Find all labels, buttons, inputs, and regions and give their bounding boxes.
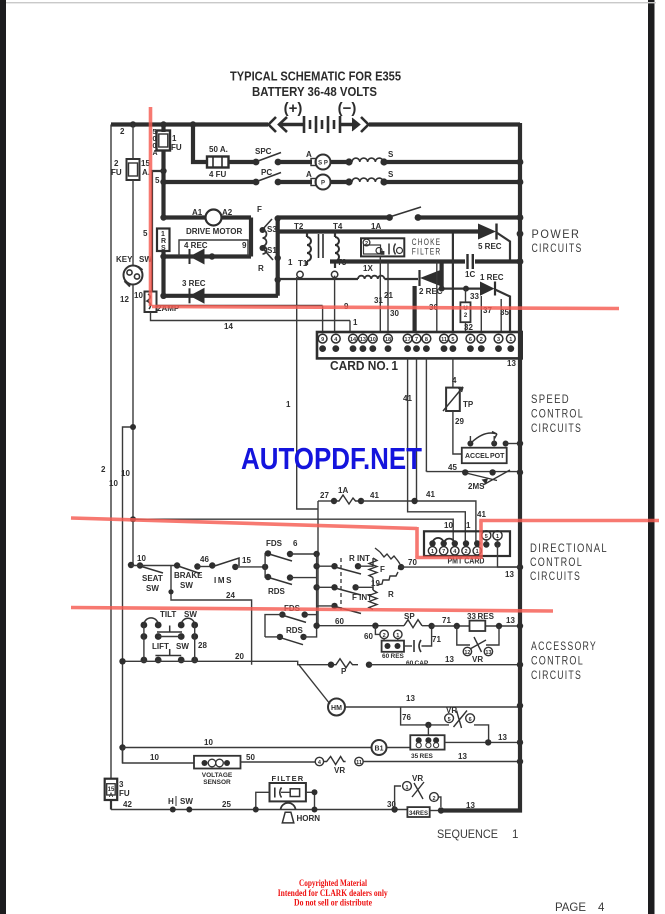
svg-text:ACCEL: ACCEL	[465, 453, 490, 460]
svg-text:AUTOPDF.NET: AUTOPDF.NET	[241, 441, 422, 476]
svg-text:11: 11	[356, 760, 362, 766]
svg-text:14: 14	[350, 337, 357, 343]
svg-text:CIRCUITS: CIRCUITS	[531, 670, 582, 682]
svg-text:DRIVE MOTOR: DRIVE MOTOR	[186, 227, 243, 236]
svg-text:A1: A1	[192, 208, 203, 217]
svg-text:FU: FU	[119, 789, 130, 798]
svg-text:13: 13	[505, 570, 514, 579]
svg-text:3: 3	[497, 337, 500, 343]
svg-text:1: 1	[509, 337, 512, 343]
svg-text:6: 6	[469, 717, 472, 723]
svg-text:VR: VR	[472, 655, 483, 664]
svg-text:1: 1	[288, 258, 293, 267]
svg-text:3: 3	[119, 780, 124, 789]
svg-text:FILTER: FILTER	[412, 247, 442, 257]
svg-text:5: 5	[153, 129, 157, 136]
svg-text:B1: B1	[375, 746, 384, 753]
svg-text:5: 5	[448, 717, 451, 723]
svg-text:S: S	[388, 150, 394, 159]
svg-text:1: 1	[161, 231, 165, 238]
svg-text:29: 29	[455, 417, 464, 426]
svg-text:10: 10	[370, 337, 376, 343]
svg-text:10: 10	[134, 291, 143, 300]
svg-text:SW: SW	[180, 797, 193, 806]
svg-text:30: 30	[390, 309, 399, 318]
svg-text:71: 71	[442, 616, 451, 625]
svg-text:Intended for CLARK dealers onl: Intended for CLARK dealers only	[278, 888, 388, 898]
svg-text:60 RES: 60 RES	[382, 653, 405, 660]
svg-text:TP: TP	[463, 400, 474, 409]
svg-text:BATTERY 36-48 VOLTS: BATTERY 36-48 VOLTS	[252, 85, 377, 99]
svg-text:4: 4	[598, 902, 605, 914]
svg-text:P: P	[321, 181, 325, 187]
svg-text:FDS: FDS	[266, 539, 283, 548]
svg-text:11: 11	[441, 337, 447, 343]
svg-text:CIRCUITS: CIRCUITS	[532, 243, 583, 255]
svg-text:SW: SW	[184, 610, 197, 619]
svg-text:25: 25	[222, 800, 231, 809]
svg-text:32: 32	[464, 323, 473, 332]
svg-text:76: 76	[402, 713, 411, 722]
svg-text:0: 0	[153, 136, 157, 143]
svg-text:A2: A2	[222, 208, 233, 217]
svg-text:A: A	[306, 150, 312, 159]
svg-text:28: 28	[198, 641, 207, 650]
svg-text:TILT: TILT	[160, 610, 176, 619]
svg-text:I M S: I M S	[214, 576, 232, 585]
svg-text:RDS: RDS	[268, 587, 286, 596]
svg-text:SENSOR: SENSOR	[203, 779, 231, 786]
svg-text:1: 1	[405, 785, 408, 791]
svg-text:R: R	[161, 238, 166, 245]
svg-text:1: 1	[476, 549, 479, 555]
svg-text:SPC: SPC	[255, 147, 272, 156]
svg-text:45: 45	[448, 463, 457, 472]
svg-text:FU: FU	[111, 168, 122, 177]
svg-text:CONTROL: CONTROL	[531, 409, 584, 421]
svg-text:Copyrighted Material: Copyrighted Material	[299, 878, 367, 888]
svg-text:9: 9	[321, 337, 324, 343]
svg-text:A: A	[153, 150, 158, 157]
svg-text:42: 42	[123, 800, 132, 809]
svg-text:10: 10	[109, 479, 118, 488]
svg-text:6: 6	[469, 337, 472, 343]
svg-text:1A: 1A	[338, 486, 348, 495]
svg-text:(−): (−)	[338, 100, 357, 117]
svg-text:18: 18	[385, 337, 391, 343]
svg-text:CHOKE: CHOKE	[412, 237, 442, 247]
svg-text:HORN: HORN	[297, 814, 321, 823]
svg-text:46: 46	[200, 555, 209, 564]
svg-text:2: 2	[480, 337, 483, 343]
svg-text:S P: S P	[318, 161, 328, 167]
svg-text:3 REC: 3 REC	[182, 279, 206, 288]
svg-text:1: 1	[353, 318, 358, 327]
svg-text:5: 5	[143, 229, 148, 238]
svg-text:27: 27	[320, 491, 329, 500]
svg-text:LIFT: LIFT	[152, 642, 169, 651]
svg-text:R INT: R INT	[349, 554, 370, 563]
svg-text:7: 7	[442, 549, 445, 555]
svg-text:VOLTAGE: VOLTAGE	[202, 772, 233, 779]
svg-text:41: 41	[426, 490, 435, 499]
svg-text:6: 6	[293, 539, 298, 548]
svg-text:KEY: KEY	[116, 255, 133, 264]
svg-text:2: 2	[114, 159, 119, 168]
svg-text:13: 13	[498, 733, 507, 742]
svg-text:2MS: 2MS	[468, 482, 485, 491]
svg-text:P: P	[341, 667, 347, 676]
svg-text:41: 41	[477, 510, 486, 519]
svg-text:34RES: 34RES	[409, 811, 428, 817]
svg-text:33: 33	[470, 292, 479, 301]
svg-text:Do not sell or distribute: Do not sell or distribute	[294, 898, 372, 908]
svg-text:SP: SP	[404, 612, 415, 621]
svg-text:CIRCUITS: CIRCUITS	[530, 571, 581, 583]
svg-text:10: 10	[444, 521, 453, 530]
svg-text:9: 9	[242, 241, 247, 250]
svg-text:14: 14	[224, 322, 233, 331]
svg-text:24: 24	[226, 591, 235, 600]
svg-text:2: 2	[383, 633, 386, 639]
svg-text:F: F	[380, 565, 385, 574]
svg-text:1X: 1X	[363, 264, 373, 273]
svg-text:A: A	[109, 793, 114, 799]
svg-text:10: 10	[121, 469, 130, 478]
svg-text:0: 0	[153, 143, 157, 150]
svg-text:13: 13	[406, 694, 415, 703]
svg-text:A: A	[306, 170, 312, 179]
svg-text:2: 2	[464, 549, 467, 555]
svg-text:SPEED: SPEED	[531, 394, 570, 406]
svg-text:70: 70	[408, 558, 417, 567]
svg-text:VR: VR	[334, 766, 345, 775]
svg-text:2: 2	[432, 796, 435, 802]
svg-text:1: 1	[512, 829, 520, 841]
svg-text:13: 13	[445, 655, 454, 664]
svg-text:13: 13	[360, 337, 366, 343]
svg-text:1: 1	[396, 633, 399, 639]
svg-text:71: 71	[432, 635, 441, 644]
svg-text:CONTROL: CONTROL	[531, 656, 584, 668]
svg-text:2: 2	[365, 241, 368, 247]
svg-text:10: 10	[204, 738, 213, 747]
svg-text:4: 4	[452, 376, 457, 385]
svg-text:R: R	[258, 264, 264, 273]
svg-text:1: 1	[466, 521, 471, 530]
svg-text:1: 1	[286, 400, 291, 409]
svg-text:60 CAP: 60 CAP	[406, 660, 429, 667]
svg-text:CIRCUITS: CIRCUITS	[531, 423, 582, 435]
svg-text:POWER: POWER	[532, 229, 581, 241]
svg-text:FU: FU	[171, 143, 182, 152]
svg-text:13: 13	[485, 650, 491, 656]
svg-text:2: 2	[101, 465, 106, 474]
svg-text:1: 1	[172, 134, 177, 143]
svg-text:5: 5	[155, 176, 160, 185]
svg-text:41: 41	[403, 394, 412, 403]
svg-text:1C: 1C	[465, 270, 475, 279]
svg-text:50: 50	[246, 753, 255, 762]
svg-text:13: 13	[507, 359, 516, 368]
svg-text:DIRECTIONAL: DIRECTIONAL	[530, 543, 608, 555]
svg-text:PAGE: PAGE	[555, 902, 586, 914]
svg-text:SEAT: SEAT	[142, 574, 163, 583]
svg-text:FILTER: FILTER	[272, 774, 305, 783]
svg-text:20: 20	[235, 652, 244, 661]
svg-text:10: 10	[137, 554, 146, 563]
svg-text:SW: SW	[146, 584, 159, 593]
svg-text:TYPICAL SCHEMATIC FOR E355: TYPICAL SCHEMATIC FOR E355	[230, 70, 401, 84]
svg-text:4 REC: 4 REC	[184, 241, 208, 250]
svg-text:2: 2	[120, 127, 125, 136]
svg-text:17: 17	[405, 337, 411, 343]
svg-text:12: 12	[120, 295, 129, 304]
svg-text:15: 15	[242, 556, 251, 565]
svg-text:31: 31	[374, 296, 383, 305]
svg-text:4 FU: 4 FU	[209, 170, 227, 179]
svg-text:5 REC: 5 REC	[478, 242, 502, 251]
svg-text:S: S	[388, 170, 394, 179]
svg-text:CARD NO. 1: CARD NO. 1	[330, 359, 398, 373]
svg-text:1 REC: 1 REC	[480, 273, 504, 282]
svg-text:50 A.: 50 A.	[209, 145, 228, 154]
svg-text:F: F	[257, 205, 262, 214]
svg-text:F INT: F INT	[352, 593, 372, 602]
svg-text:33 RES: 33 RES	[467, 612, 495, 621]
svg-text:SW: SW	[180, 581, 193, 590]
svg-text:S: S	[161, 245, 166, 252]
svg-text:13: 13	[506, 616, 515, 625]
svg-text:BRAKE: BRAKE	[174, 571, 203, 580]
svg-text:T2: T2	[294, 222, 304, 231]
svg-text:ACCESSORY: ACCESSORY	[531, 641, 597, 653]
svg-text:R: R	[388, 590, 394, 599]
svg-text:POT: POT	[490, 453, 505, 460]
svg-text:21: 21	[384, 291, 393, 300]
svg-text:8: 8	[425, 337, 428, 343]
svg-text:SW: SW	[176, 642, 189, 651]
svg-text:13: 13	[458, 752, 467, 761]
svg-text:1: 1	[431, 549, 434, 555]
svg-text:35 RES: 35 RES	[411, 753, 434, 760]
svg-text:5: 5	[451, 337, 454, 343]
svg-text:T1: T1	[298, 259, 308, 268]
svg-text:T4: T4	[333, 222, 343, 231]
svg-text:(+): (+)	[284, 100, 303, 117]
svg-text:SEQUENCE: SEQUENCE	[437, 829, 498, 841]
svg-text:12: 12	[464, 650, 470, 656]
svg-text:7: 7	[415, 337, 418, 343]
svg-text:HM: HM	[331, 705, 342, 712]
svg-text:CONTROL: CONTROL	[530, 557, 583, 569]
svg-text:60: 60	[364, 632, 373, 641]
svg-text:13: 13	[466, 801, 475, 810]
svg-text:10: 10	[150, 753, 159, 762]
svg-text:41: 41	[370, 491, 379, 500]
svg-text:VR: VR	[412, 774, 423, 783]
svg-text:60: 60	[335, 617, 344, 626]
svg-text:H: H	[168, 797, 174, 806]
svg-text:RDS: RDS	[286, 626, 304, 635]
